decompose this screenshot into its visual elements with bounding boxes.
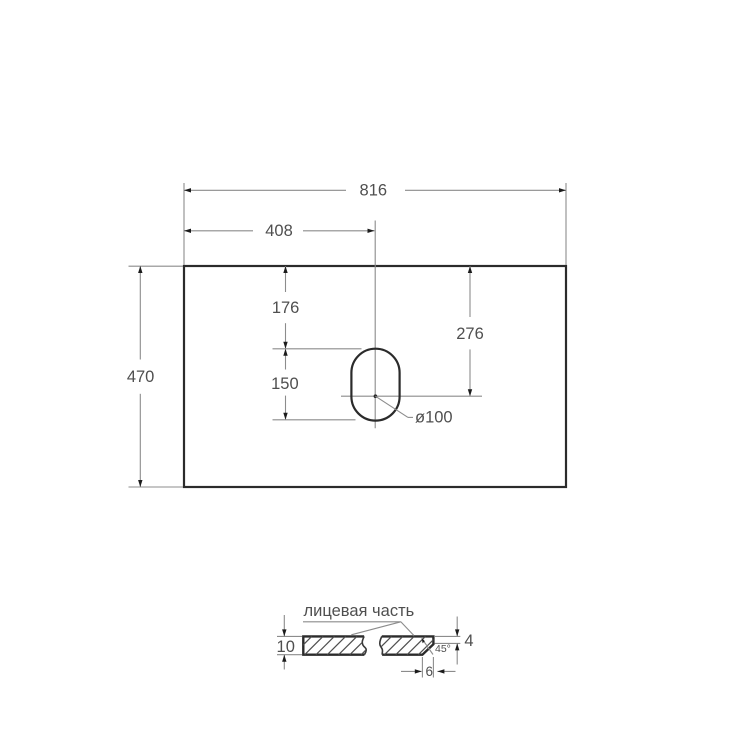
svg-text:4: 4 xyxy=(464,632,473,650)
svg-text:408: 408 xyxy=(265,222,293,240)
svg-text:6: 6 xyxy=(425,664,433,679)
svg-text:10: 10 xyxy=(277,638,295,656)
svg-text:45°: 45° xyxy=(435,643,451,655)
svg-text:470: 470 xyxy=(127,368,155,386)
svg-text:ø100: ø100 xyxy=(415,409,453,427)
svg-text:176: 176 xyxy=(272,299,300,317)
svg-text:276: 276 xyxy=(456,325,484,343)
svg-text:816: 816 xyxy=(360,181,388,199)
svg-text:150: 150 xyxy=(271,375,299,393)
svg-text:лицевая часть: лицевая часть xyxy=(304,602,415,620)
